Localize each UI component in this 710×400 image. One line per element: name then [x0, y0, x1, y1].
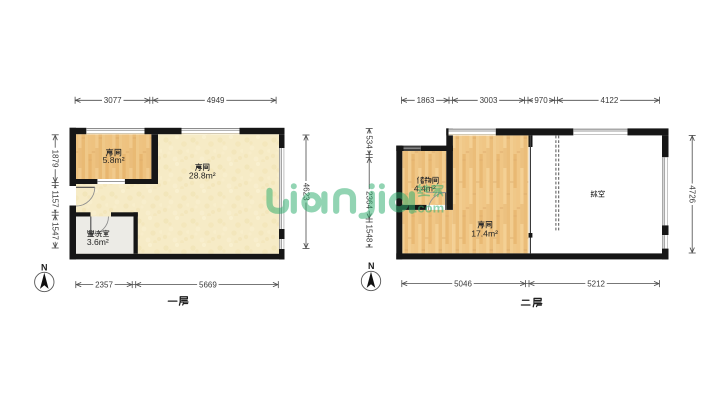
- svg-text:.com: .com: [414, 201, 444, 216]
- svg-text:5669: 5669: [199, 280, 217, 289]
- svg-text:N: N: [368, 261, 375, 271]
- svg-text:1157: 1157: [51, 190, 60, 208]
- svg-text:3077: 3077: [104, 96, 122, 105]
- svg-text:3003: 3003: [480, 96, 498, 105]
- svg-text:3.6m²: 3.6m²: [87, 237, 109, 247]
- svg-text:4726: 4726: [688, 185, 697, 203]
- svg-text:1548: 1548: [365, 225, 374, 243]
- svg-text:2357: 2357: [95, 280, 113, 289]
- svg-text:970: 970: [534, 96, 548, 105]
- svg-text:5046: 5046: [454, 279, 472, 288]
- svg-text:1547: 1547: [51, 222, 60, 240]
- svg-text:17.4m²: 17.4m²: [471, 228, 498, 238]
- svg-text:4949: 4949: [207, 96, 225, 105]
- svg-text:4122: 4122: [601, 96, 619, 105]
- svg-text:1879: 1879: [51, 150, 60, 168]
- svg-text:28.8m²: 28.8m²: [189, 170, 216, 180]
- svg-text:534: 534: [365, 135, 374, 149]
- svg-text:N: N: [41, 262, 48, 272]
- svg-text:5.8m²: 5.8m²: [103, 155, 125, 165]
- svg-text:5212: 5212: [587, 279, 605, 288]
- svg-text:1863: 1863: [417, 96, 435, 105]
